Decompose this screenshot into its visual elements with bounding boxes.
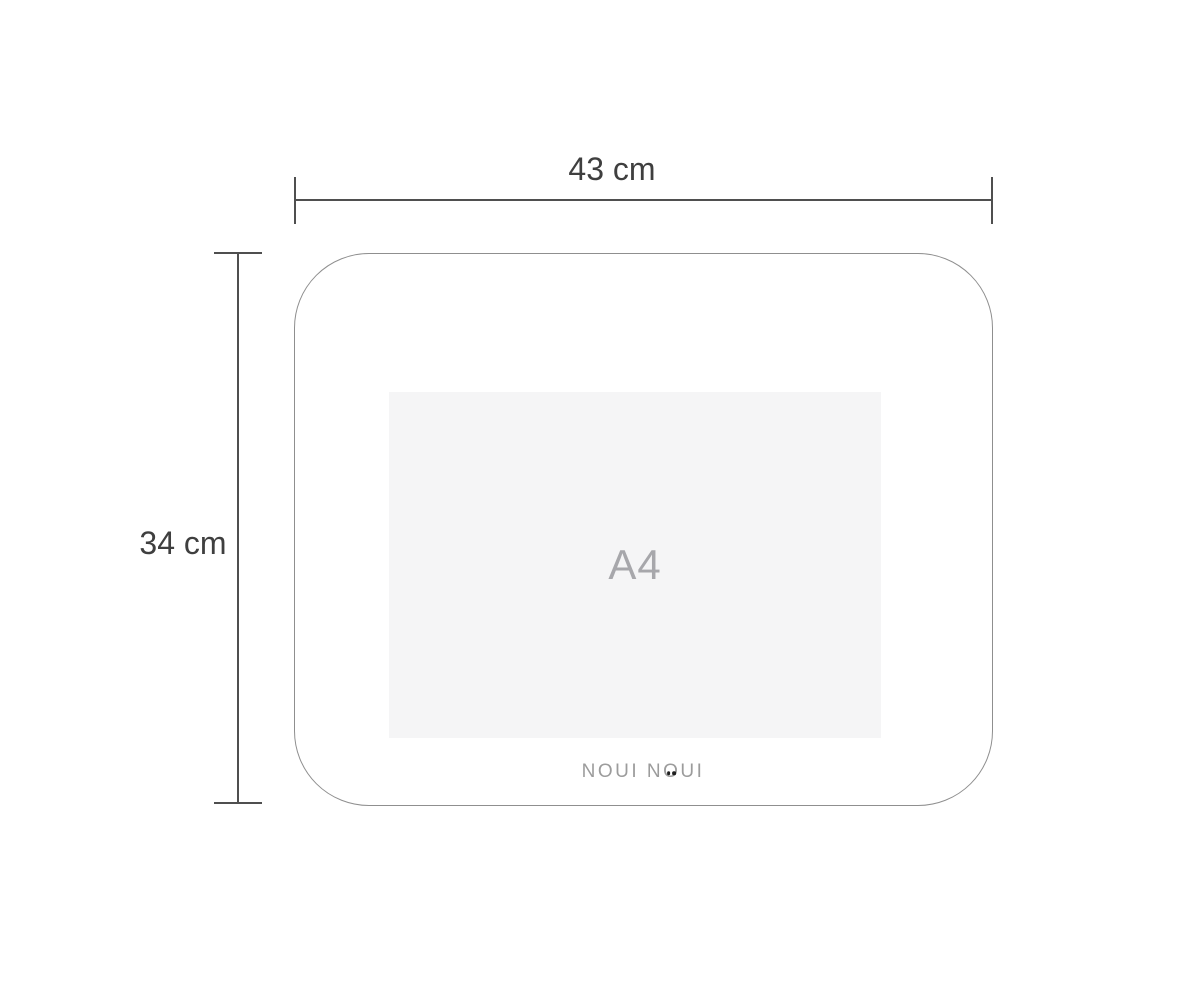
height-dimension-label: 34 cm xyxy=(139,524,226,562)
width-dimension-label: 43 cm xyxy=(568,150,655,188)
brand-logo-eye-dots-icon xyxy=(667,771,676,775)
brand-logo: NOUI NOUI xyxy=(582,761,705,783)
brand-logo-eye-o: O xyxy=(663,761,680,783)
height-dimension-line xyxy=(237,253,239,804)
height-dimension-tick-top xyxy=(214,252,262,254)
brand-logo-text-left: NOUI N xyxy=(582,761,664,782)
width-dimension-tick-right xyxy=(991,177,993,224)
placemat-dimension-diagram: 43 cm 34 cm A4 NOUI NOUI xyxy=(0,0,1200,1000)
width-dimension-line xyxy=(295,199,992,201)
a4-area: A4 xyxy=(389,392,881,738)
brand-logo-text-right: UI xyxy=(680,761,704,782)
a4-label: A4 xyxy=(608,541,661,589)
width-dimension-tick-left xyxy=(294,177,296,224)
height-dimension-tick-bottom xyxy=(214,802,262,804)
